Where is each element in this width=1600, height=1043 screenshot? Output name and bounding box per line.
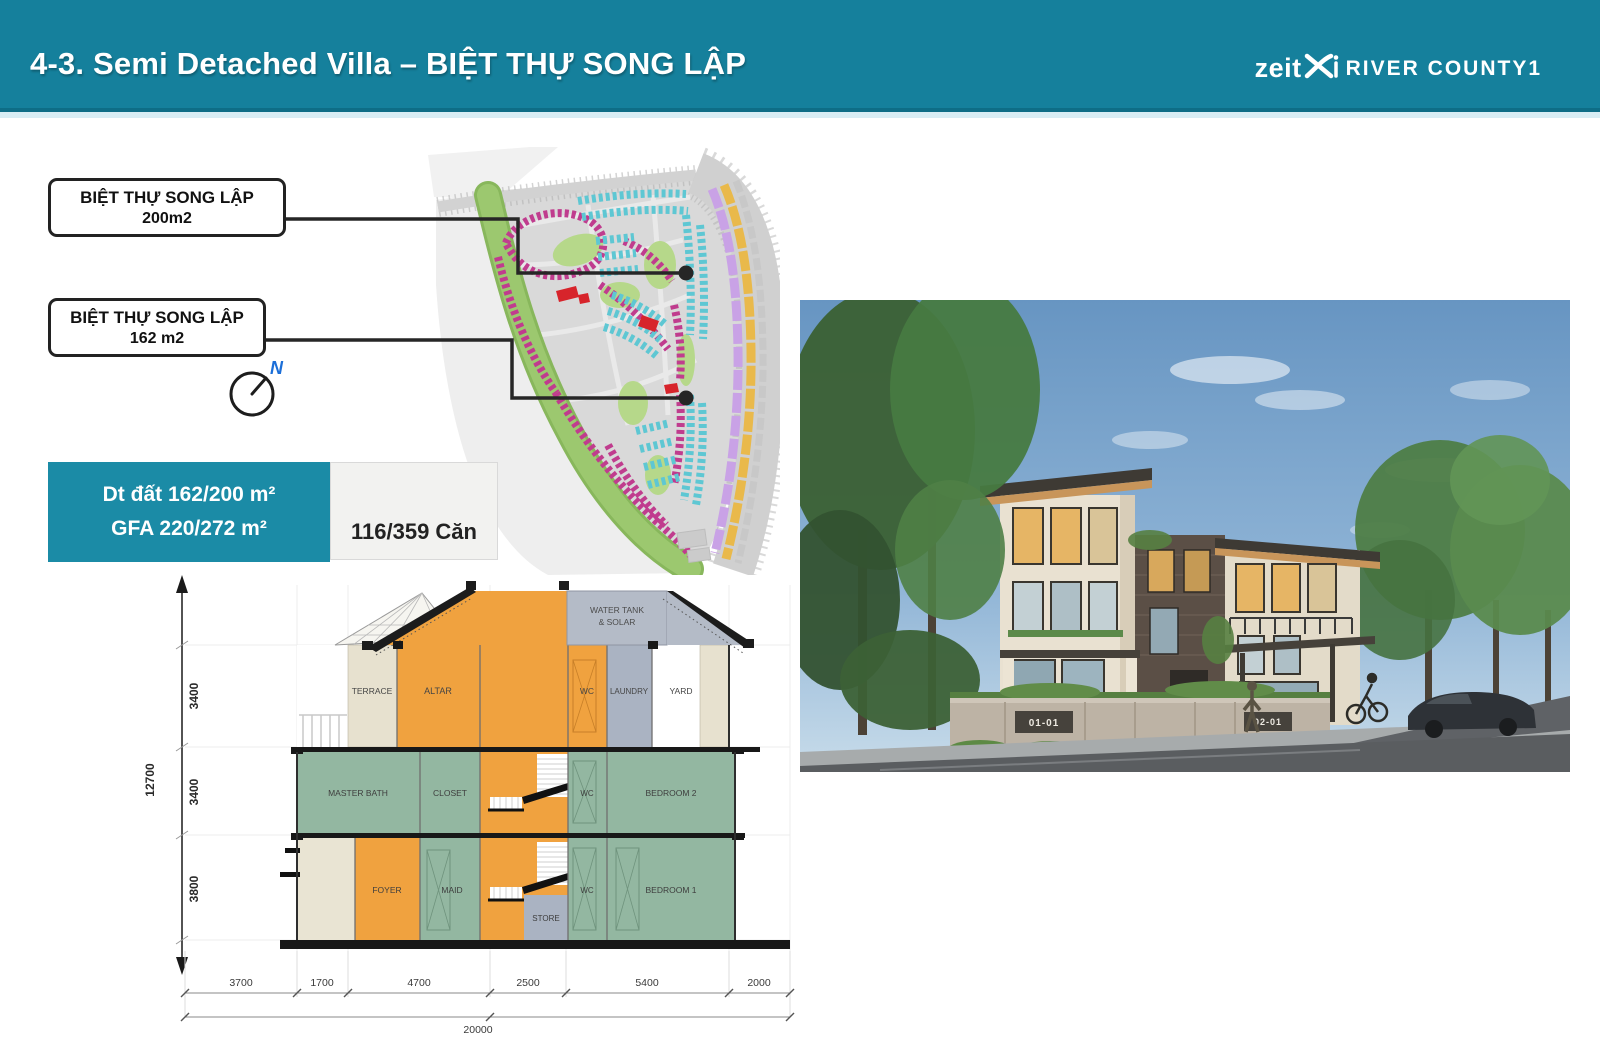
slide: 4-3. Semi Detached Villa – BIỆT THỰ SONG… (0, 0, 1600, 1043)
info-panel-units: 116/359 Căn (330, 462, 498, 560)
compass-north-label: N (270, 358, 284, 378)
callout-162m2-area: 162 m2 (61, 330, 253, 348)
dim-5400: 5400 (635, 977, 659, 989)
callout-200m2: BIỆT THỰ SONG LẬP 200m2 (48, 178, 286, 237)
gfa-text: GFA 220/272 m² (111, 517, 267, 541)
room-label-terrace: TERRACE (352, 686, 393, 696)
gate-sign-02-01-text: 02-01 (1254, 717, 1282, 727)
logo-project-text: RIVER COUNTY1 (1346, 57, 1542, 81)
dim-2000: 2000 (747, 977, 771, 989)
page-title: 4-3. Semi Detached Villa – BIỆT THỰ SONG… (30, 46, 746, 82)
section-floor2: MASTER BATH CLOSET WC BEDROOM 2 (297, 752, 735, 833)
logo-brand-text: zeit (1255, 53, 1302, 84)
room-label-yard: YARD (670, 686, 693, 696)
section-horizontal-dims: 3700 1700 4700 2500 5400 2000 20000 (181, 951, 794, 1036)
dim-total-height: 12700 (143, 763, 157, 797)
dim-4700: 4700 (407, 977, 431, 989)
room-label-maid: MAID (441, 885, 462, 895)
dim-3700: 3700 (229, 977, 253, 989)
info-panel: Dt đất 162/200 m² GFA 220/272 m² 116/359… (48, 462, 498, 562)
room-label-store: STORE (532, 914, 559, 923)
compass-icon: N (222, 358, 294, 424)
dim-3400-mid: 3400 (187, 778, 201, 805)
leader-dot-200m2 (679, 266, 694, 281)
leader-dot-162m2 (679, 391, 694, 406)
dim-2500: 2500 (516, 977, 540, 989)
section-floor1: FOYER MAID STORE WC BEDROOM 1 (280, 838, 735, 940)
villa-render-photo: 01-01 02-01 (800, 300, 1570, 772)
section-drawing: TERRACE ALTAR WC LAUNDRY YARD (140, 565, 800, 1037)
room-label-wc2: WC (580, 789, 594, 798)
dim-1700: 1700 (310, 977, 334, 989)
brand-logo: zeit RIVER COUNTY1 (1255, 52, 1542, 85)
callout-162m2: BIỆT THỰ SONG LẬP 162 m2 (48, 298, 266, 357)
section-vertical-dims: 3400 3400 3800 12700 (143, 575, 201, 975)
room-label-foyer: FOYER (372, 885, 401, 895)
gate-sign-01-01-text: 01-01 (1029, 718, 1060, 729)
room-label-master-bath: MASTER BATH (328, 788, 388, 798)
dim-total-width: 20000 (463, 1024, 492, 1036)
logo-x-icon (1304, 52, 1340, 85)
land-area-text: Dt đất 162/200 m² (103, 483, 276, 507)
callout-200m2-title: BIỆT THỰ SONG LẬP (61, 188, 273, 208)
room-label-closet: CLOSET (433, 788, 467, 798)
room-label-bedroom1: BEDROOM 1 (645, 885, 696, 895)
units-count-text: 116/359 Căn (351, 519, 477, 545)
dim-3800-bottom: 3800 (187, 875, 201, 902)
info-panel-areas: Dt đất 162/200 m² GFA 220/272 m² (48, 462, 330, 562)
header-bar: 4-3. Semi Detached Villa – BIỆT THỰ SONG… (0, 0, 1600, 112)
room-label-wc3: WC (580, 686, 594, 696)
room-label-bedroom2: BEDROOM 2 (645, 788, 696, 798)
callout-200m2-area: 200m2 (61, 210, 273, 228)
dim-3400-top: 3400 (187, 682, 201, 709)
room-label-altar: ALTAR (424, 686, 452, 696)
room-label-laundry: LAUNDRY (610, 687, 649, 696)
section-floor3: TERRACE ALTAR WC LAUNDRY YARD (297, 645, 729, 747)
callout-162m2-title: BIỆT THỰ SONG LẬP (61, 308, 253, 328)
room-label-wc1: WC (580, 886, 594, 895)
